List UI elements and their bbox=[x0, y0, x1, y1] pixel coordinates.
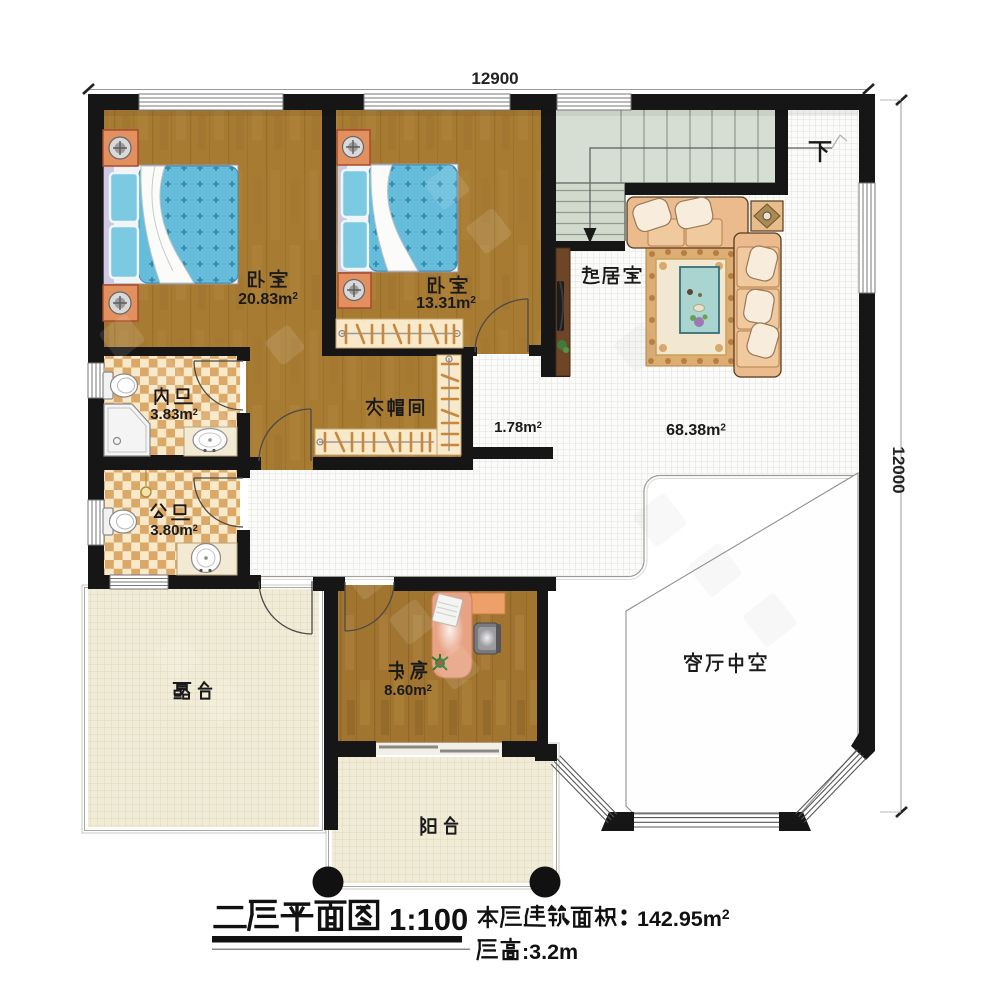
svg-text:1.78m2: 1.78m2 bbox=[494, 419, 542, 436]
svg-text:12000: 12000 bbox=[889, 446, 908, 493]
svg-text:13.31m2: 13.31m2 bbox=[416, 295, 476, 312]
svg-text:142.95m2: 142.95m2 bbox=[637, 906, 730, 931]
svg-text:20.83m2: 20.83m2 bbox=[238, 291, 298, 308]
svg-text::3.2m: :3.2m bbox=[522, 940, 578, 964]
svg-text:8.60m2: 8.60m2 bbox=[384, 682, 432, 699]
svg-text:68.38m2: 68.38m2 bbox=[666, 422, 726, 439]
svg-text:12900: 12900 bbox=[471, 69, 518, 88]
svg-text:3.80m2: 3.80m2 bbox=[150, 522, 198, 539]
svg-text:3.83m2: 3.83m2 bbox=[150, 406, 198, 423]
svg-text:1:100: 1:100 bbox=[389, 902, 468, 937]
